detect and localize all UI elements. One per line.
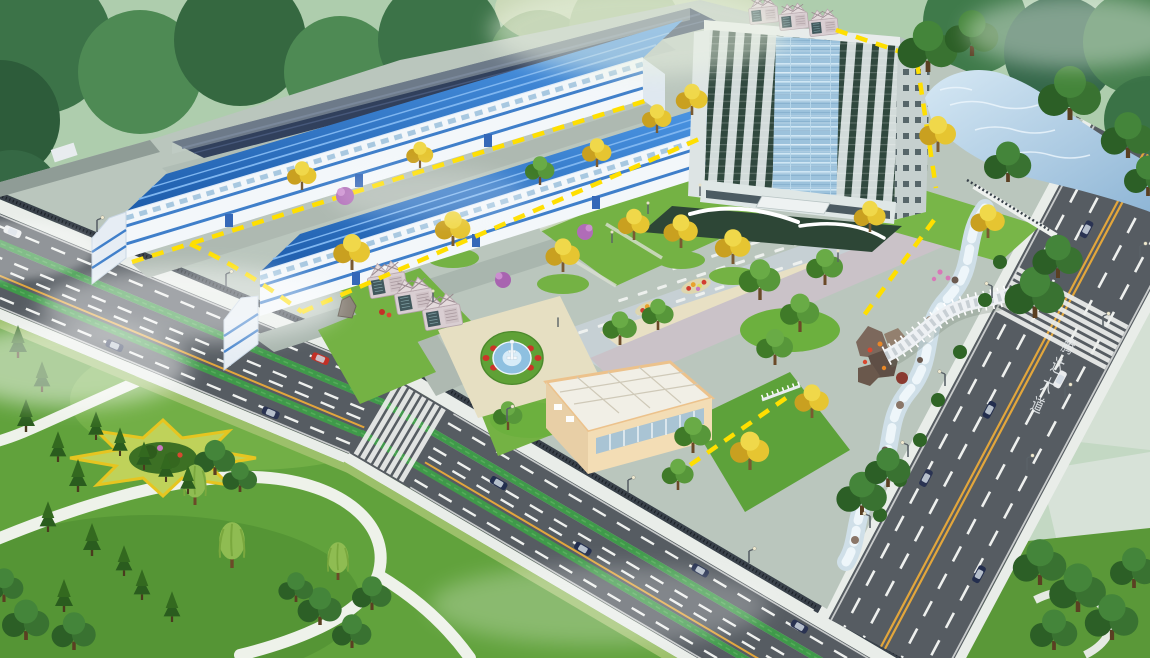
fountain bbox=[481, 332, 543, 385]
campus-rendering: 腾 达 大 道 bbox=[0, 0, 1150, 658]
scene-canvas: 腾 达 大 道 bbox=[0, 0, 1150, 658]
